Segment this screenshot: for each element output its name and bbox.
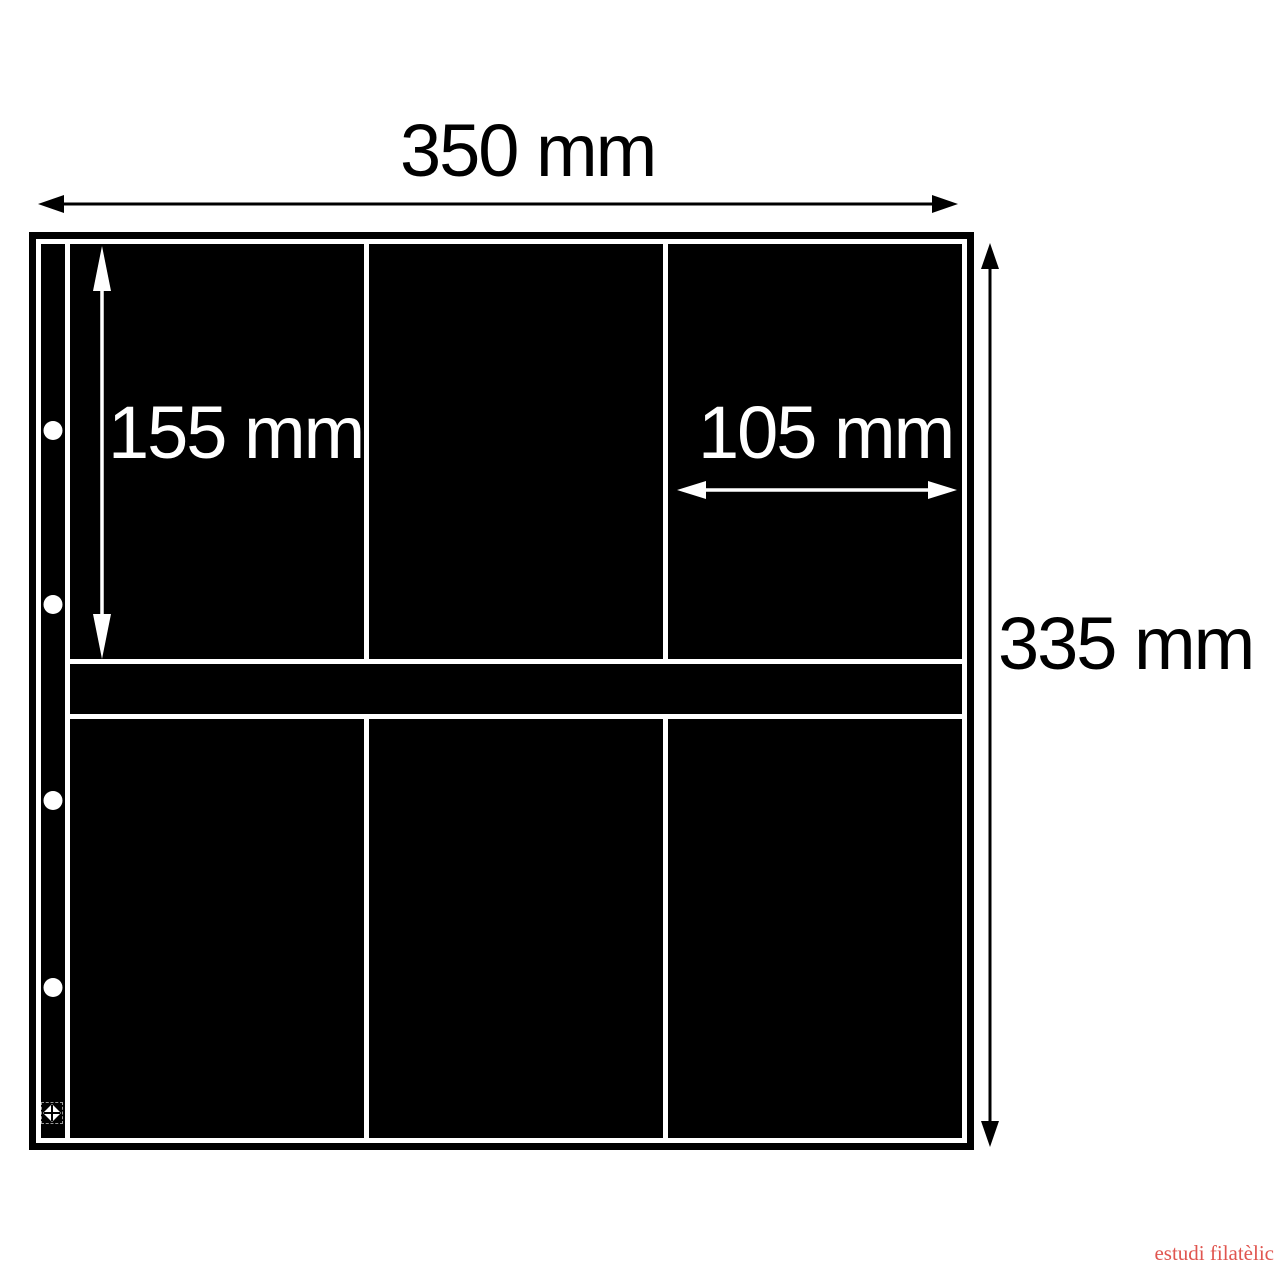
sheet-width-arrow-icon [36, 193, 960, 215]
pocket-height-arrow-icon [92, 245, 112, 660]
pocket [70, 719, 364, 1138]
pocket-width-label: 105 mm [698, 396, 953, 470]
pocket-height-label: 155 mm [108, 396, 363, 470]
punch-hole-icon [44, 978, 63, 997]
sheet-width-label: 350 mm [400, 114, 655, 188]
sheet-height-arrow-icon [978, 241, 1002, 1149]
sheet-height-label: 335 mm [998, 607, 1253, 681]
pocket-width-arrow-icon [676, 479, 958, 501]
stock-sheet [29, 232, 974, 1150]
pocket-area [70, 244, 962, 1138]
pocket [369, 244, 663, 659]
pocket [369, 719, 663, 1138]
sheet-grid [36, 239, 967, 1143]
pocket-row-bottom [70, 719, 962, 1138]
center-strip [70, 664, 962, 714]
binding-strip [41, 244, 65, 1138]
punch-hole-icon [44, 791, 63, 810]
punch-hole-icon [44, 421, 63, 440]
product-diagram: 350 mm 335 mm 155 mm 105 mm estudi filat… [0, 0, 1280, 1280]
pocket [668, 719, 962, 1138]
watermark: estudi filatèlic [1154, 1242, 1274, 1265]
registration-mark-icon [41, 1102, 63, 1124]
punch-hole-icon [44, 595, 63, 614]
